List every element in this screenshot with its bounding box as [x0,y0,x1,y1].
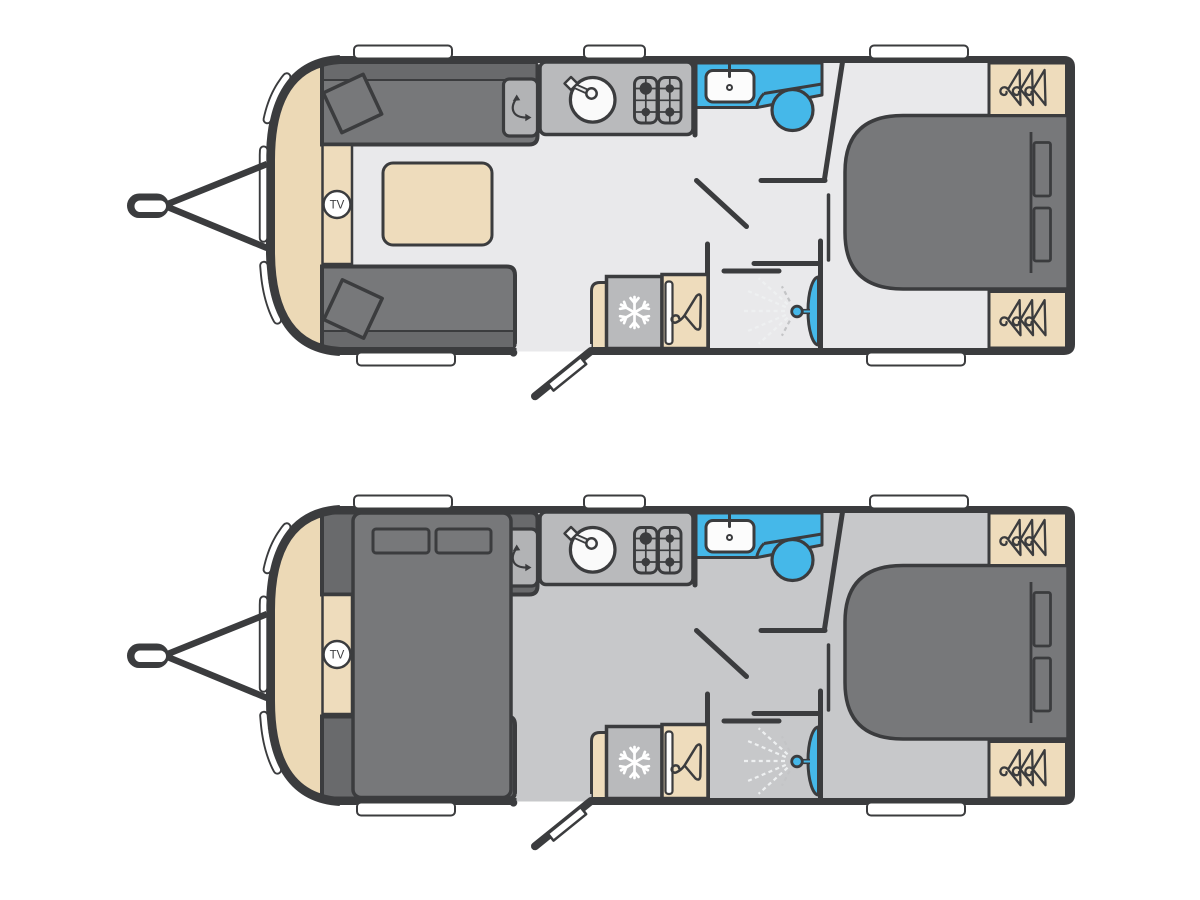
svg-text:TV: TV [330,200,345,212]
svg-text:TV: TV [330,650,345,662]
